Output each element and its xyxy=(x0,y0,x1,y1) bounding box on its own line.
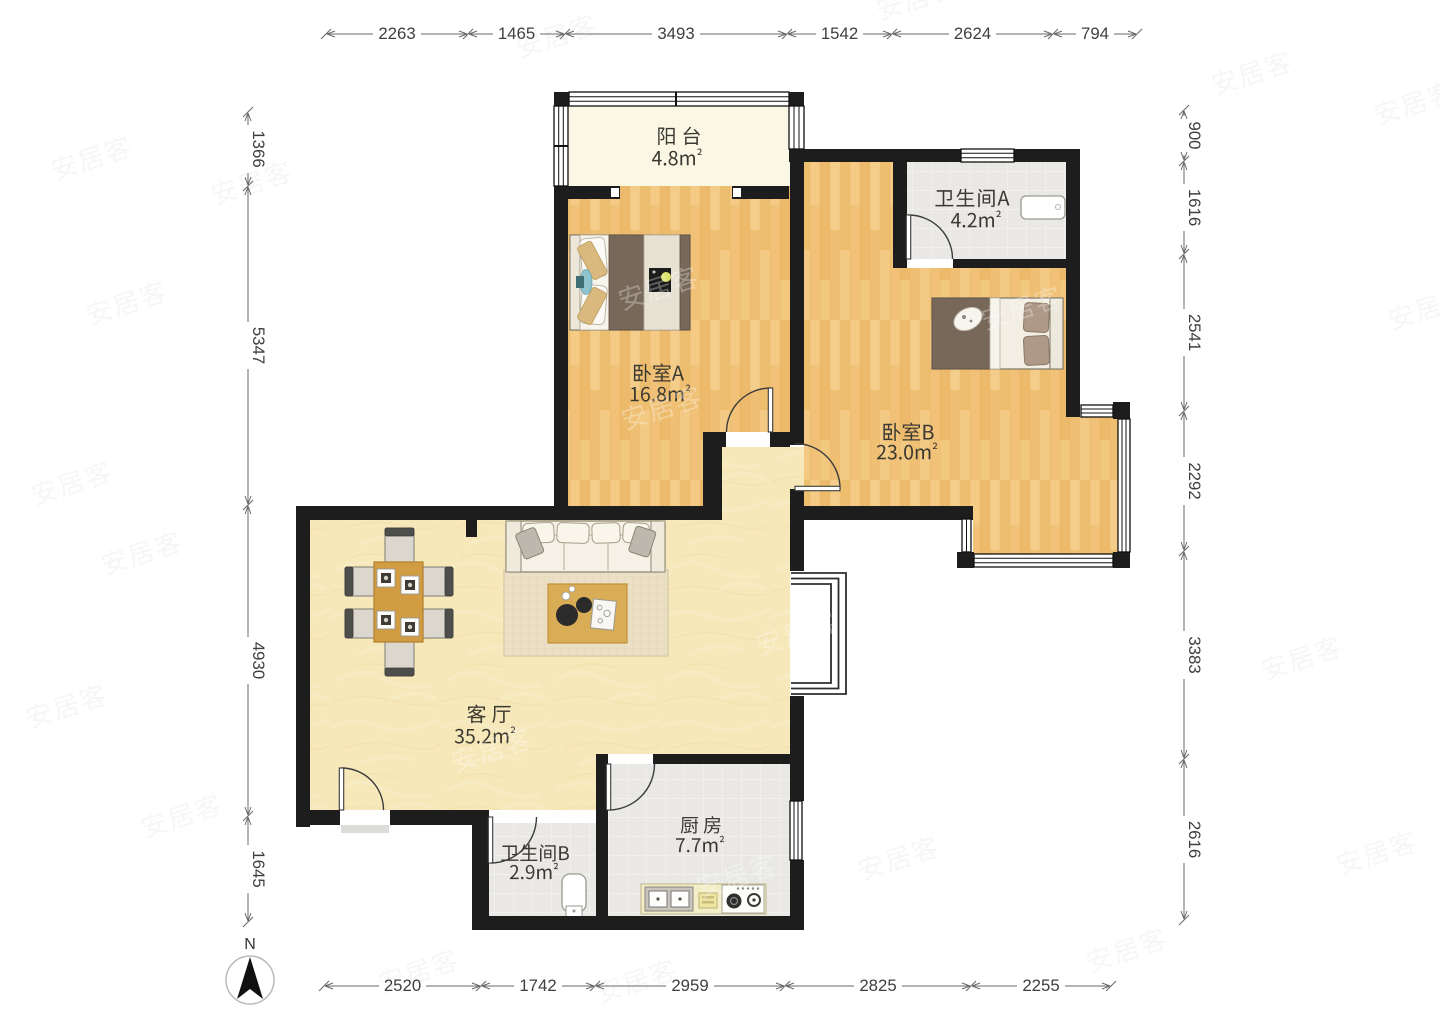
svg-text:1366: 1366 xyxy=(249,130,268,167)
svg-text:794: 794 xyxy=(1081,24,1109,43)
svg-text:N: N xyxy=(244,936,256,953)
svg-text:1616: 1616 xyxy=(1185,189,1204,226)
svg-text:2292: 2292 xyxy=(1185,462,1204,499)
svg-text:3493: 3493 xyxy=(657,24,694,43)
svg-text:1465: 1465 xyxy=(498,24,535,43)
svg-text:1542: 1542 xyxy=(821,24,858,43)
svg-text:3383: 3383 xyxy=(1185,636,1204,673)
svg-text:2255: 2255 xyxy=(1022,976,1059,995)
svg-text:2959: 2959 xyxy=(671,976,708,995)
svg-text:1742: 1742 xyxy=(519,976,556,995)
svg-text:2616: 2616 xyxy=(1185,821,1204,858)
svg-text:5347: 5347 xyxy=(249,327,268,364)
svg-text:900: 900 xyxy=(1185,122,1204,150)
svg-text:2825: 2825 xyxy=(859,976,896,995)
svg-text:4930: 4930 xyxy=(249,642,268,679)
svg-text:2541: 2541 xyxy=(1185,314,1204,351)
svg-text:2624: 2624 xyxy=(954,24,991,43)
svg-text:2263: 2263 xyxy=(378,24,415,43)
svg-text:1645: 1645 xyxy=(249,850,268,887)
